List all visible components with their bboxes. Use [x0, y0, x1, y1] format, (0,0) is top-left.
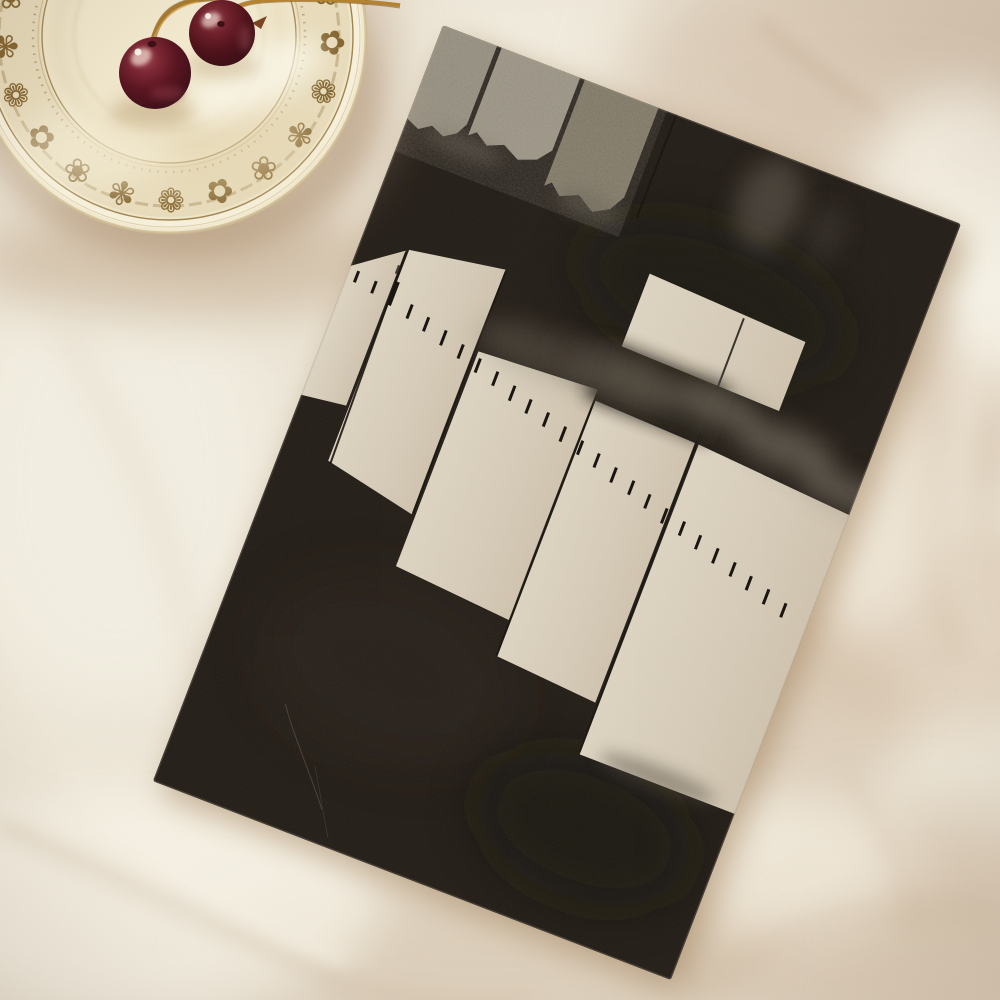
photo-grain [0, 0, 1000, 1000]
photo-stage: A black-and-white abstract art print lyi… [0, 0, 1000, 1000]
